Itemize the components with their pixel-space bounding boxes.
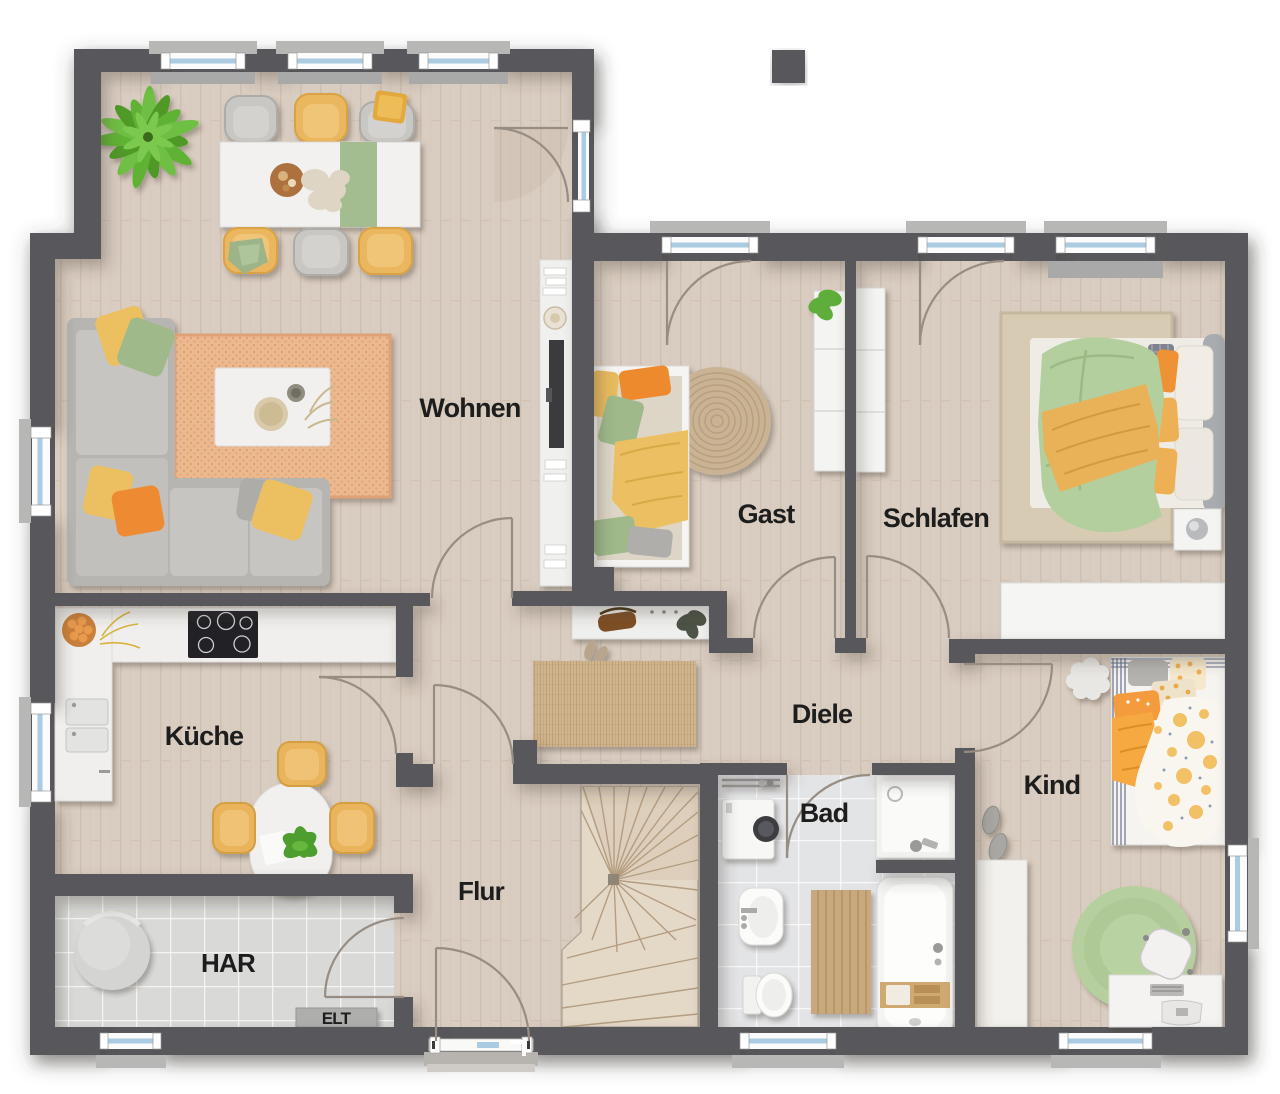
svg-text:HAR: HAR bbox=[201, 948, 256, 978]
svg-text:Gast: Gast bbox=[738, 499, 796, 529]
svg-text:Kind: Kind bbox=[1024, 770, 1081, 800]
svg-text:ELT: ELT bbox=[322, 1009, 352, 1028]
svg-text:Schlafen: Schlafen bbox=[883, 503, 989, 533]
svg-text:Wohnen: Wohnen bbox=[419, 393, 520, 423]
svg-text:Küche: Küche bbox=[165, 721, 244, 751]
svg-text:Diele: Diele bbox=[792, 699, 853, 729]
svg-text:Bad: Bad bbox=[800, 798, 849, 828]
svg-text:Flur: Flur bbox=[458, 876, 505, 906]
